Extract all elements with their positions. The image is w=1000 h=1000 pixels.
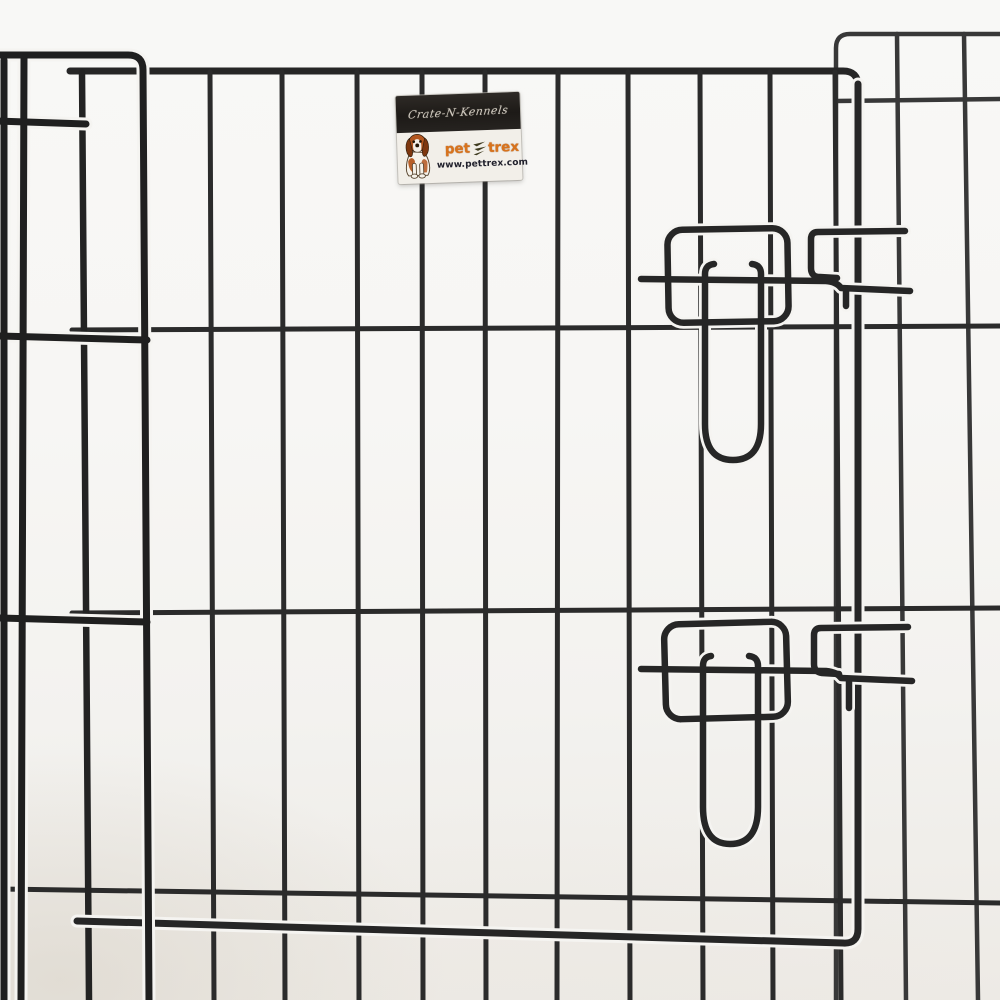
foreground-panel-wires: [0, 55, 149, 1000]
brand-word-trex: trex: [488, 141, 519, 156]
label-body: pet trex www.pettrex.com: [397, 129, 523, 184]
door-frame-wire: [77, 84, 858, 943]
label-series-band: Crate-N-Kennels: [396, 92, 521, 133]
brand-label: Crate-N-Kennels: [396, 92, 523, 184]
gate-top-rail: [70, 71, 858, 86]
gate-left-wire: [82, 72, 89, 1000]
brand-logo: pet trex: [445, 139, 520, 159]
latch-assemblies: [641, 228, 912, 844]
pettrex-zigzag-icon: [471, 141, 488, 157]
beagle-dog-icon: [399, 130, 437, 179]
series-name-text: Crate-N-Kennels: [407, 103, 509, 121]
door-frame-halo: [77, 84, 858, 943]
product-photo: Crate-N-Kennels: [0, 0, 1000, 1000]
website-url: www.pettrex.com: [437, 158, 528, 170]
label-text-block: pet trex www.pettrex.com: [436, 139, 528, 170]
brand-word-pet: pet: [445, 143, 471, 157]
